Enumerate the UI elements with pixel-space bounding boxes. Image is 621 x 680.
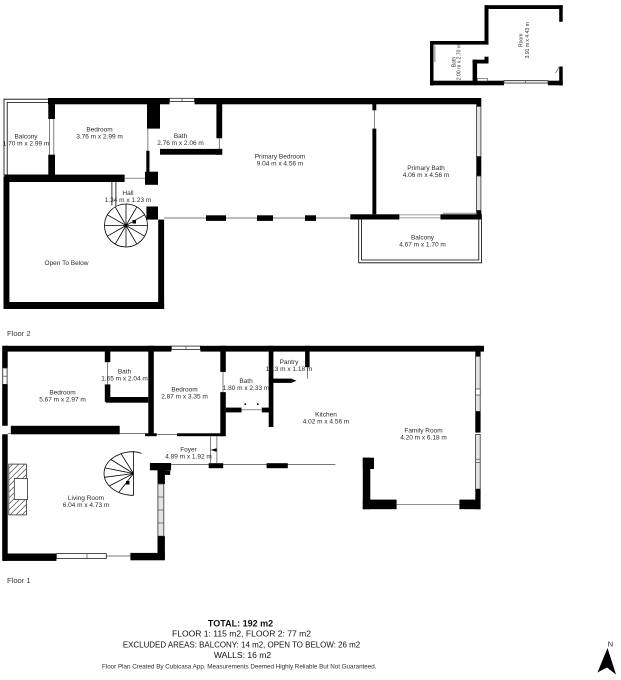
svg-text:Bath: Bath <box>239 378 253 385</box>
svg-text:4.20 m x 6.18 m: 4.20 m x 6.18 m <box>400 435 447 442</box>
svg-text:Bath: Bath <box>174 133 188 140</box>
svg-text:Bath: Bath <box>118 368 132 375</box>
svg-text:1.13 m x 1.18 m: 1.13 m x 1.18 m <box>266 366 313 373</box>
svg-text:2.00 m x 2.70 m: 2.00 m x 2.70 m <box>457 44 463 80</box>
svg-text:3.91 m x 4.43 m: 3.91 m x 4.43 m <box>525 22 531 58</box>
svg-text:2.76 m x 2.06 m: 2.76 m x 2.06 m <box>157 140 204 147</box>
svg-text:TOTAL: 192 m2: TOTAL: 192 m2 <box>208 619 273 629</box>
svg-text:1.70 m x 2.99 m: 1.70 m x 2.99 m <box>3 140 50 147</box>
svg-text:9.04 m x 4.56 m: 9.04 m x 4.56 m <box>257 160 304 167</box>
svg-text:4.02 m x 4.56 m: 4.02 m x 4.56 m <box>303 418 350 425</box>
svg-text:1.65 m x 2.04 m: 1.65 m x 2.04 m <box>101 375 148 382</box>
svg-text:Foyer: Foyer <box>180 447 197 454</box>
svg-text:4.67 m x 1.70 m: 4.67 m x 1.70 m <box>399 242 446 249</box>
svg-text:2.87 m x 3.35 m: 2.87 m x 3.35 m <box>161 394 208 401</box>
svg-text:1.80 m x 2.33 m: 1.80 m x 2.33 m <box>223 385 270 392</box>
svg-text:EXCLUDED AREAS: BALCONY: 14 m2: EXCLUDED AREAS: BALCONY: 14 m2, OPEN TO … <box>123 641 361 650</box>
svg-text:WALLS: 16 m2: WALLS: 16 m2 <box>214 650 271 660</box>
svg-text:6.04 m x 4.73 m: 6.04 m x 4.73 m <box>63 502 110 509</box>
svg-text:Bedroom: Bedroom <box>171 387 197 394</box>
svg-text:Kitchen: Kitchen <box>315 411 337 418</box>
svg-text:Floor Plan Created By Cubicasa: Floor Plan Created By Cubicasa App. Meas… <box>102 664 377 671</box>
svg-text:Pantry: Pantry <box>280 359 300 366</box>
svg-text:Primary Bedroom: Primary Bedroom <box>255 153 306 160</box>
svg-text:FLOOR 1: 115 m2, FLOOR 2: 77 m: FLOOR 1: 115 m2, FLOOR 2: 77 m2 <box>172 629 311 639</box>
svg-text:Family Room: Family Room <box>404 428 442 435</box>
svg-text:Balcony: Balcony <box>14 133 38 140</box>
svg-text:Primary Bath: Primary Bath <box>407 165 445 172</box>
svg-text:Hall: Hall <box>122 190 134 197</box>
svg-text:N: N <box>608 640 613 649</box>
svg-text:4.89 m x 1.92 m: 4.89 m x 1.92 m <box>165 454 212 461</box>
svg-text:Balcony: Balcony <box>411 235 435 242</box>
svg-text:Room: Room <box>518 34 524 47</box>
svg-text:1.34 m x 1.23 m: 1.34 m x 1.23 m <box>105 197 152 204</box>
svg-text:Floor 2: Floor 2 <box>7 329 31 338</box>
svg-text:5.67 m x 2.97 m: 5.67 m x 2.97 m <box>39 396 86 403</box>
svg-text:Living Room: Living Room <box>68 495 104 502</box>
svg-text:3.76 m x 2.99 m: 3.76 m x 2.99 m <box>76 134 123 141</box>
svg-text:Bedroom: Bedroom <box>49 389 75 396</box>
svg-text:Open To Below: Open To Below <box>45 260 89 267</box>
svg-text:Bedroom: Bedroom <box>86 127 112 134</box>
svg-text:4.06 m x 4.56 m: 4.06 m x 4.56 m <box>403 172 450 179</box>
svg-text:Floor 1: Floor 1 <box>7 576 31 585</box>
